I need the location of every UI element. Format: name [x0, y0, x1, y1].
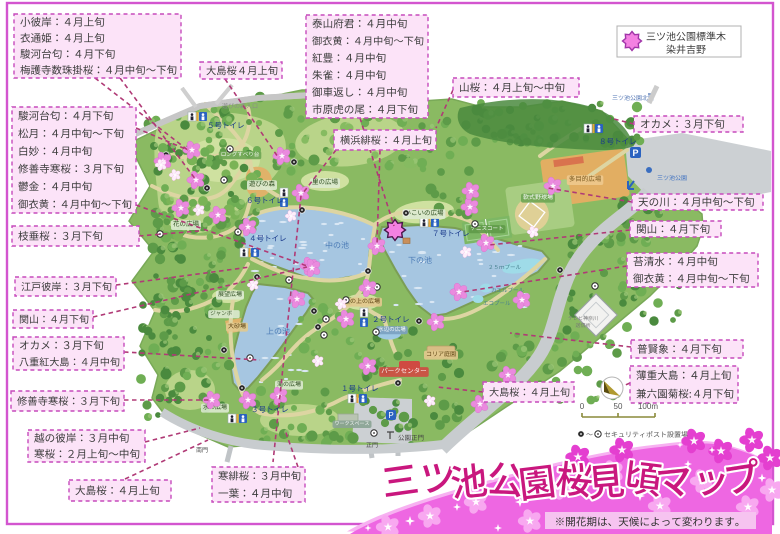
svg-text:50: 50: [614, 402, 623, 411]
svg-text:P: P: [388, 411, 393, 420]
svg-text:0: 0: [580, 402, 585, 411]
svg-text:P: P: [632, 148, 638, 158]
svg-text:100m: 100m: [638, 402, 658, 411]
